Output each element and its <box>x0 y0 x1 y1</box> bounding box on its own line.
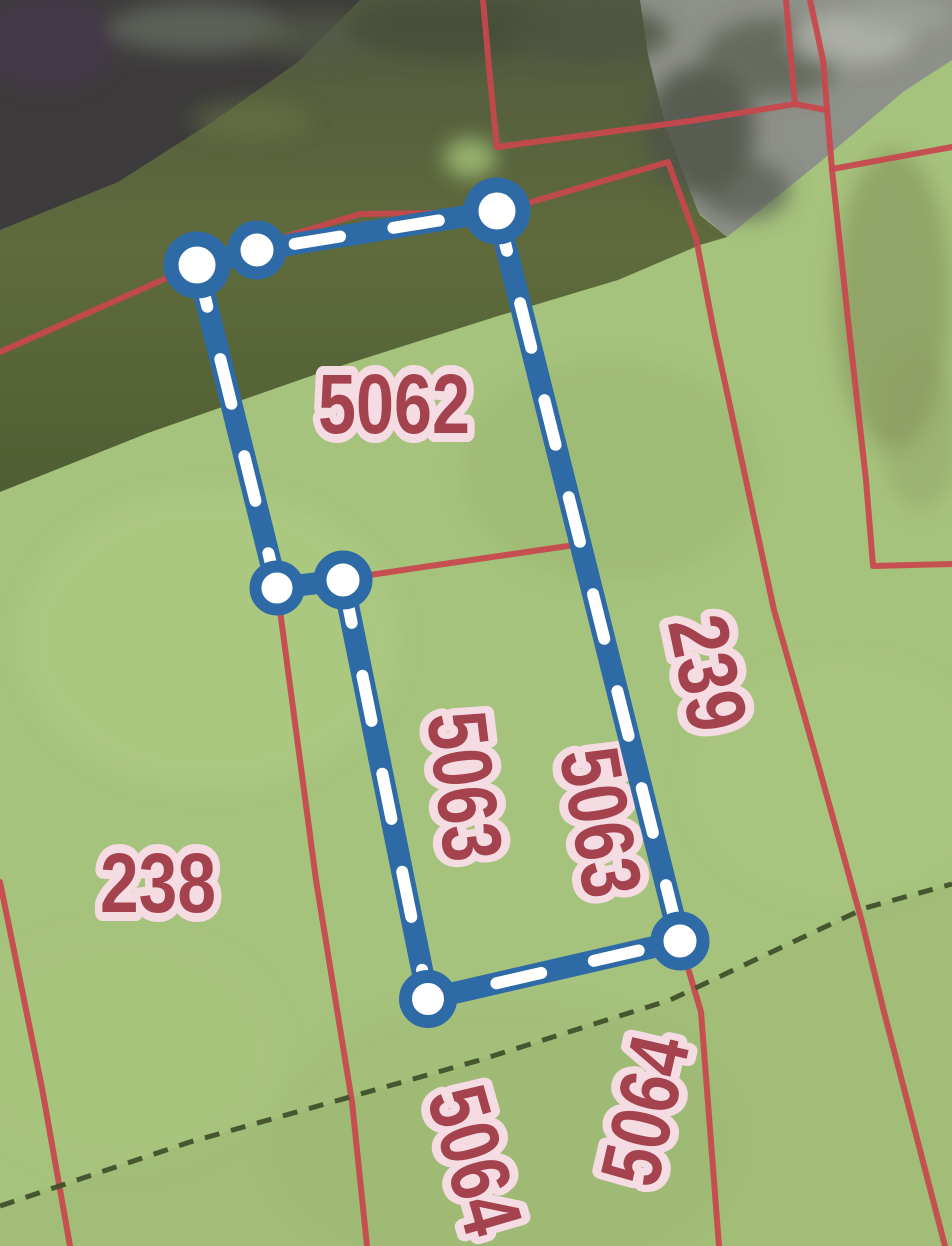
parcel-label: 238 <box>100 836 216 930</box>
map-viewport[interactable]: 5062 238 239 5063 5063 5064 5064 <box>0 0 952 1246</box>
vertex-handle-7[interactable] <box>657 918 703 964</box>
vertex-handle-4[interactable] <box>256 567 299 610</box>
vertex-handle-2[interactable] <box>234 227 280 273</box>
parcel-label: 5063 <box>409 706 521 866</box>
vertex-handle-6[interactable] <box>406 977 451 1022</box>
vertex-handle-3[interactable] <box>471 185 523 237</box>
vertex-handle-5[interactable] <box>320 557 366 603</box>
vertex-handle-1[interactable] <box>171 239 223 291</box>
parcel-label: 5062 <box>318 357 470 451</box>
